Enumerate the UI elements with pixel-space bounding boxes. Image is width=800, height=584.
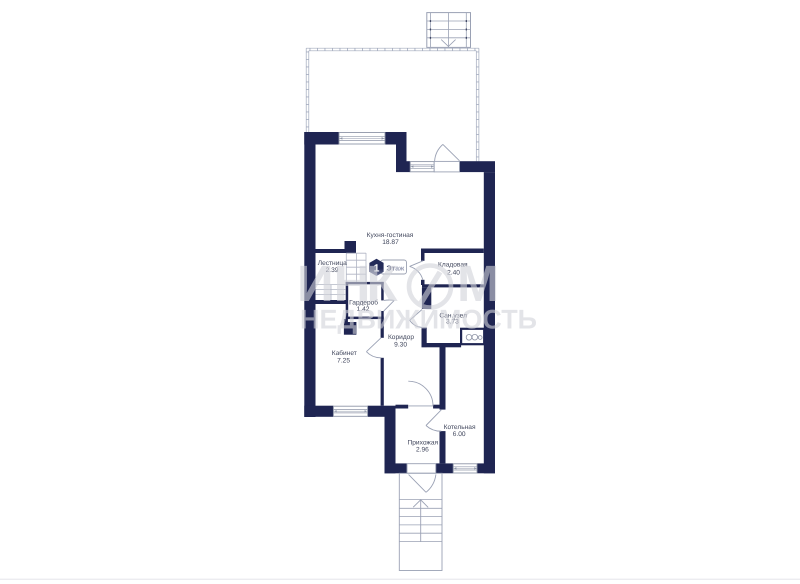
svg-text:Котельная: Котельная bbox=[444, 424, 476, 431]
svg-text:К: К bbox=[367, 255, 399, 312]
svg-text:7.25: 7.25 bbox=[337, 358, 350, 365]
svg-text:ИН: ИН bbox=[297, 255, 371, 312]
svg-text:Кабинет: Кабинет bbox=[332, 350, 357, 357]
svg-text:9.30: 9.30 bbox=[394, 341, 407, 348]
svg-text:18.87: 18.87 bbox=[382, 239, 399, 246]
svg-text:М: М bbox=[457, 255, 499, 312]
svg-text:НЕДВИЖИМОСТЬ: НЕДВИЖИМОСТЬ bbox=[300, 305, 537, 335]
svg-text:6.00: 6.00 bbox=[453, 431, 466, 438]
svg-text:2.96: 2.96 bbox=[416, 446, 429, 453]
svg-text:Коридор: Коридор bbox=[388, 334, 414, 341]
